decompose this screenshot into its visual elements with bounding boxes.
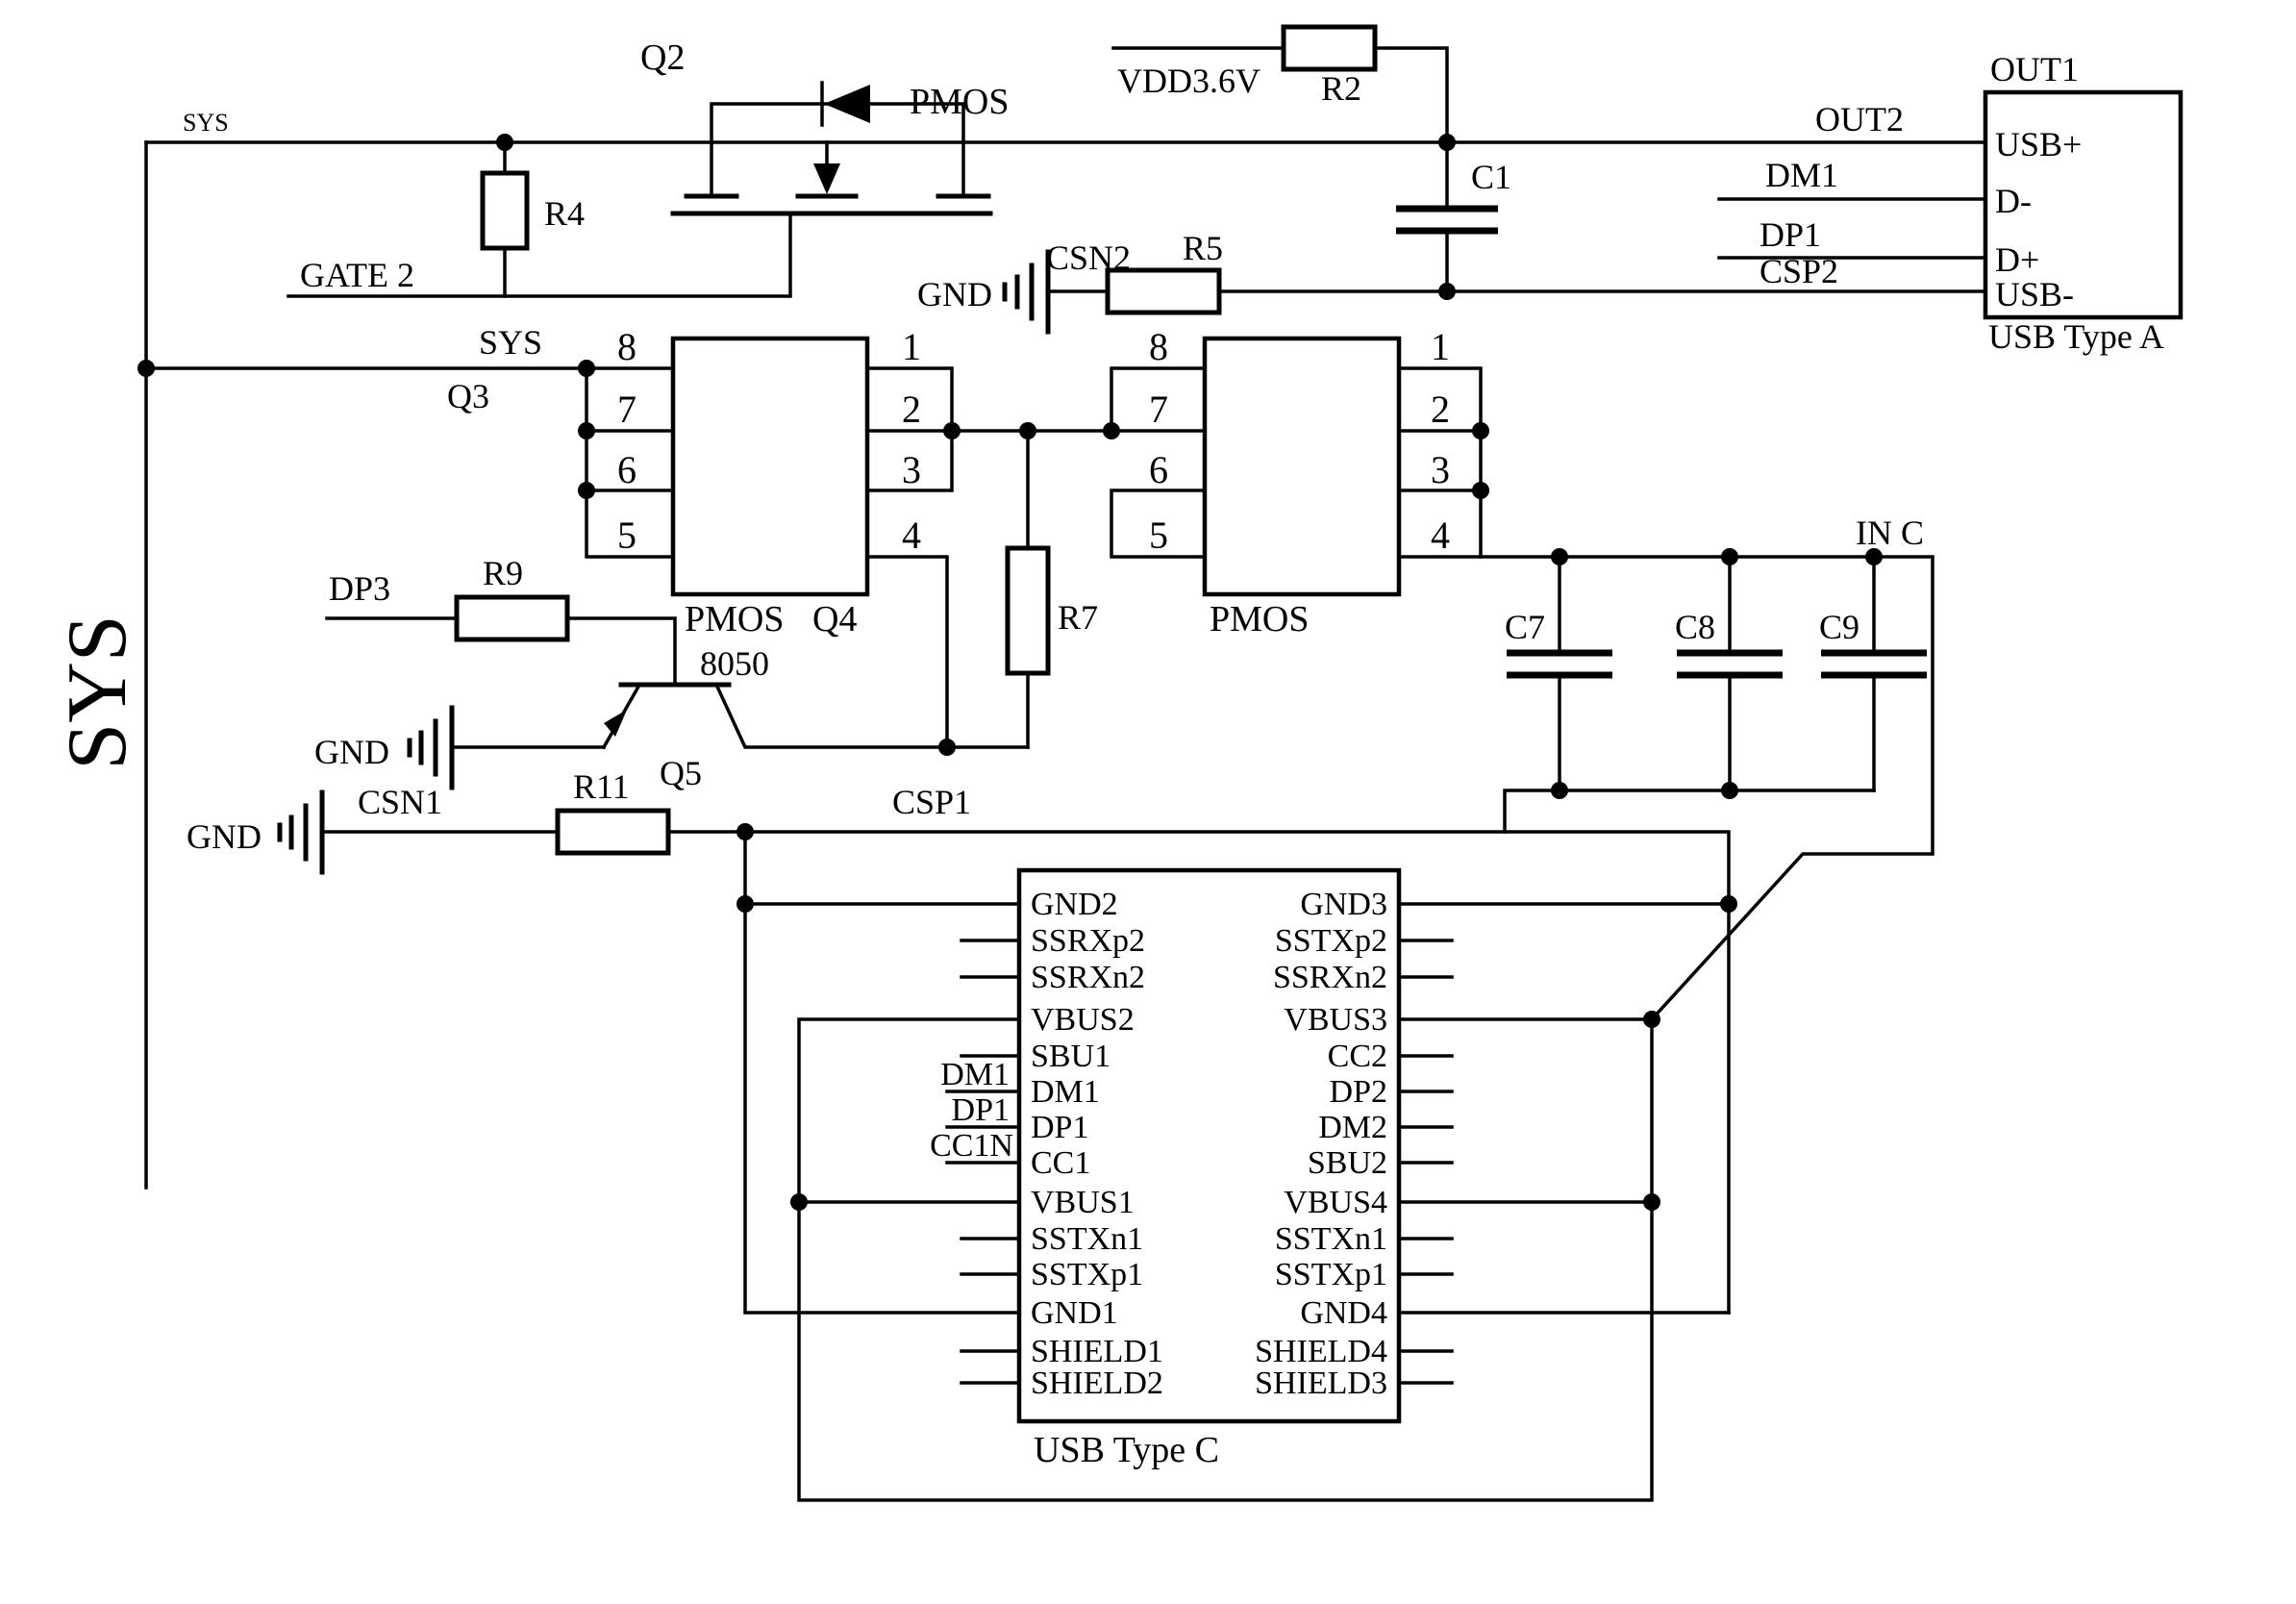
usb-a-title: OUT1 xyxy=(1990,50,2079,88)
ic1-pin-4: 4 xyxy=(902,514,921,557)
gnd-symbol-q5 xyxy=(410,708,452,788)
usb-c-pin-gnd4: GND4 xyxy=(1300,1295,1387,1331)
ic1-pin-3: 3 xyxy=(902,448,921,491)
usb-c-pin-cc2: CC2 xyxy=(1328,1039,1387,1074)
component-label-r11: R11 xyxy=(573,767,630,806)
junction-dot xyxy=(1551,548,1568,565)
q2-substrate-arrow xyxy=(813,163,840,194)
usb-c-pin-sstxp1-r: SSTXp1 xyxy=(1275,1257,1387,1292)
ic2-pin-6: 6 xyxy=(1149,448,1168,491)
net-label-dp3: DP3 xyxy=(329,569,390,608)
usb-c-caption: USB Type C xyxy=(1034,1430,1219,1470)
junction-dot xyxy=(1472,422,1489,439)
gnd-symbol-csn2 xyxy=(1005,252,1048,332)
ic2-dual-pmos-box xyxy=(1205,338,1399,594)
junction-dot xyxy=(578,360,595,377)
component-label-q2-type: PMOS xyxy=(910,82,1010,122)
usb-a-pin-dplus: D+ xyxy=(1995,240,2039,279)
ext-label-cc1n: CC1N xyxy=(930,1128,1013,1164)
junction-dot xyxy=(943,422,961,439)
junction-dot xyxy=(1103,422,1120,439)
junction-dot xyxy=(1721,782,1738,799)
usb-a-pin-usbminus: USB- xyxy=(1995,275,2074,313)
usb-c-pin-dm1: DM1 xyxy=(1031,1074,1100,1110)
net-label-gate2: GATE 2 xyxy=(300,256,414,294)
ic2-pin-8: 8 xyxy=(1149,325,1168,368)
net-label-csp2: CSP2 xyxy=(1759,252,1838,290)
usb-c-pin-dp2: DP2 xyxy=(1330,1074,1387,1110)
component-label-r9: R9 xyxy=(483,554,523,592)
net-label-gnd-q5: GND xyxy=(314,733,389,771)
ic2-pin-7: 7 xyxy=(1149,388,1168,431)
ic2-caption-pmos: PMOS xyxy=(1210,599,1310,639)
junction-dot xyxy=(1438,134,1456,151)
usb-c-pin-ssrxp2: SSRXp2 xyxy=(1031,923,1145,959)
usb-c-pin-vbus2: VBUS2 xyxy=(1031,1002,1135,1038)
component-label-r7: R7 xyxy=(1058,598,1098,637)
ext-label-dm1: DM1 xyxy=(940,1057,1010,1092)
net-label-dp1: DP1 xyxy=(1759,215,1821,254)
resistor-r9 xyxy=(457,597,567,639)
resistor-r11 xyxy=(558,811,668,853)
resistor-r7 xyxy=(1008,548,1048,673)
ic1-pin-6: 6 xyxy=(617,448,636,491)
usb-c-pin-dm2: DM2 xyxy=(1318,1110,1387,1145)
usb-c-pin-sstxp2: SSTXp2 xyxy=(1275,923,1387,959)
junction-dot xyxy=(790,1193,808,1211)
net-label-sys-big: SYS xyxy=(51,614,144,769)
junction-dot xyxy=(1438,283,1456,300)
ext-label-dp1: DP1 xyxy=(952,1092,1010,1128)
usb-c-pin-vbus1: VBUS1 xyxy=(1031,1185,1135,1220)
component-label-c7: C7 xyxy=(1505,608,1545,646)
junction-dot xyxy=(736,823,754,840)
usb-c-pin-sbu2: SBU2 xyxy=(1308,1145,1387,1181)
usb-c-pin-sbu1: SBU1 xyxy=(1031,1039,1111,1074)
net-label-sys-mid: SYS xyxy=(479,323,542,362)
component-label-c9: C9 xyxy=(1819,608,1859,646)
usb-c-pin-ssrxn2-r: SSRXn2 xyxy=(1273,960,1387,995)
usb-a-caption: USB Type A xyxy=(1988,317,2164,356)
usb-c-pin-vbus3: VBUS3 xyxy=(1284,1002,1387,1038)
wire-typec-right-stubs xyxy=(1399,940,1452,1383)
schematic-canvas: SYS SYS Q2 PMOS R4 GATE 2 VDD3.6V R2 C1 … xyxy=(0,0,2296,1604)
component-label-r5: R5 xyxy=(1183,229,1223,267)
net-label-sys-top: SYS xyxy=(183,109,229,137)
usb-c-pin-sstxn1-r: SSTXn1 xyxy=(1275,1221,1387,1257)
component-label-q2: Q2 xyxy=(640,38,685,78)
junction-dot xyxy=(496,134,513,151)
junction-dot xyxy=(578,422,595,439)
usb-c-pin-ssrxn2: SSRXn2 xyxy=(1031,960,1145,995)
components xyxy=(280,27,2181,1421)
junction-dot xyxy=(1643,1011,1660,1028)
wire-q5-collector xyxy=(717,687,1028,747)
net-label-gnd-csn1: GND xyxy=(187,817,262,856)
net-label-gnd-csn2: GND xyxy=(917,275,992,313)
ic1-pin-1: 1 xyxy=(902,325,921,368)
component-label-c1: C1 xyxy=(1471,158,1511,196)
net-label-dm1: DM1 xyxy=(1765,156,1838,194)
usb-c-pin-dp1: DP1 xyxy=(1031,1110,1088,1145)
capacitor-c7 xyxy=(1507,653,1612,675)
component-label-q3: Q3 xyxy=(447,377,489,415)
ic1-caption-pmos: PMOS xyxy=(685,599,785,639)
ic2-pin-1: 1 xyxy=(1431,325,1450,368)
capacitor-c9 xyxy=(1821,653,1927,675)
junction-dot xyxy=(578,482,595,499)
net-label-vdd: VDD3.6V xyxy=(1117,62,1260,100)
usb-c-pin-sstxp1: SSTXp1 xyxy=(1031,1257,1143,1292)
wire-r2-out xyxy=(1375,48,1447,142)
junction-dot xyxy=(1720,895,1737,913)
junction-dot xyxy=(938,739,956,756)
usb-c-pin-shield3: SHIELD3 xyxy=(1255,1366,1387,1401)
ic1-pin-7: 7 xyxy=(617,388,636,431)
component-label-q4: Q4 xyxy=(812,599,857,639)
net-label-csn2: CSN2 xyxy=(1046,238,1131,277)
q5-emitter-arrow xyxy=(604,710,627,737)
q2-diode-triangle xyxy=(824,85,870,123)
ic2-pin-2: 2 xyxy=(1431,388,1450,431)
wire-ic1-pin4 xyxy=(867,557,947,747)
junction-dot xyxy=(1643,1193,1660,1211)
component-label-c8: C8 xyxy=(1675,608,1715,646)
usb-c-pin-shield1: SHIELD1 xyxy=(1031,1334,1163,1369)
component-label-r2: R2 xyxy=(1321,69,1361,108)
junction-dot xyxy=(736,895,754,913)
ic1-pin-5: 5 xyxy=(617,514,636,557)
net-label-in-c: IN C xyxy=(1856,514,1924,552)
component-label-q5: Q5 xyxy=(660,754,702,792)
component-label-q5-type: 8050 xyxy=(700,644,769,683)
ic1-dual-pmos-box xyxy=(673,338,867,594)
net-label-csp1: CSP1 xyxy=(892,783,971,821)
usb-c-pin-gnd3: GND3 xyxy=(1300,887,1387,922)
capacitor-c8 xyxy=(1677,653,1783,675)
circuit-schematic: SYS SYS Q2 PMOS R4 GATE 2 VDD3.6V R2 C1 … xyxy=(0,0,2296,1604)
ic1-pin-8: 8 xyxy=(617,325,636,368)
usb-a-pin-usbplus: USB+ xyxy=(1995,125,2082,163)
q5-transistor-symbol xyxy=(604,685,729,737)
wire-dp3-r9 xyxy=(327,618,675,683)
usb-c-pin-shield2: SHIELD2 xyxy=(1031,1366,1163,1401)
junction-dot xyxy=(1019,422,1036,439)
usb-c-pin-vbus4: VBUS4 xyxy=(1284,1185,1387,1220)
usb-a-pin-dminus: D- xyxy=(1995,182,2032,220)
usb-c-pin-gnd1: GND1 xyxy=(1031,1295,1118,1331)
ic2-pin-3: 3 xyxy=(1431,448,1450,491)
component-label-r4: R4 xyxy=(544,194,585,233)
usb-c-pin-cc1: CC1 xyxy=(1031,1145,1090,1181)
junction-dot xyxy=(137,360,155,377)
ic2-pin-4: 4 xyxy=(1431,514,1450,557)
labels: SYS SYS Q2 PMOS R4 GATE 2 VDD3.6V R2 C1 … xyxy=(51,38,2164,1470)
resistor-r4 xyxy=(483,173,527,248)
junction-dot xyxy=(1472,482,1489,499)
usb-c-pin-shield4: SHIELD4 xyxy=(1255,1334,1387,1369)
gnd-symbol-csn1 xyxy=(280,792,322,872)
usb-c-pin-sstxn1: SSTXn1 xyxy=(1031,1221,1143,1257)
junction-dot xyxy=(1551,782,1568,799)
usb-c-pin-gnd2: GND2 xyxy=(1031,887,1118,922)
ic1-pin-2: 2 xyxy=(902,388,921,431)
capacitor-c1 xyxy=(1396,209,1498,231)
junction-dot xyxy=(1721,548,1738,565)
net-label-out2: OUT2 xyxy=(1815,100,1904,138)
ic2-pin-5: 5 xyxy=(1149,514,1168,557)
resistor-r2 xyxy=(1284,27,1375,69)
net-label-csn1: CSN1 xyxy=(358,783,442,821)
